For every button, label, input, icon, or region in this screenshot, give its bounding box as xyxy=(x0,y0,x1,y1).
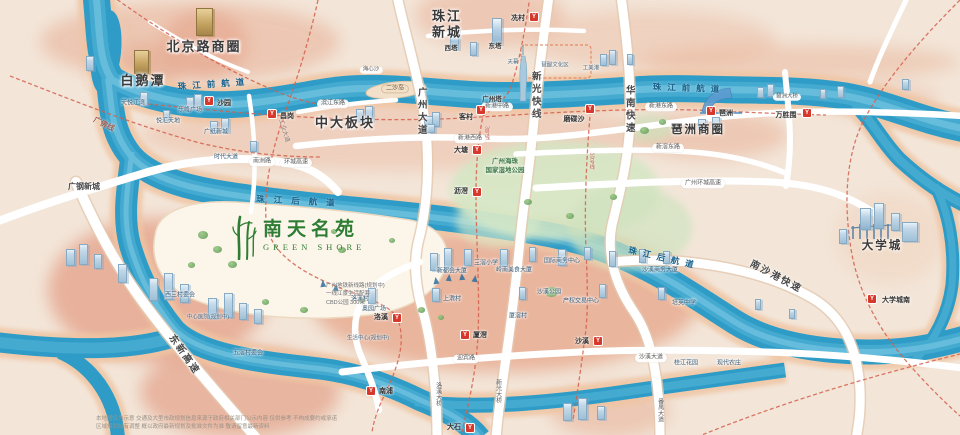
project-name: 南天名苑 xyxy=(263,214,365,241)
project-logo: 南天名苑 GREEN SHORE xyxy=(231,214,365,260)
project-note-3: CBD公园 300米 xyxy=(326,299,385,307)
disclaimer-line-2: 区域规划如有调整 概以政府最新规划及批准文件为准 敬请留意最新资料 xyxy=(96,423,406,431)
project-note-1: 广州地铁新线路(规划中) xyxy=(326,282,385,290)
project-note-2: 一线江景生活配套 xyxy=(326,290,385,298)
project-name-en: GREEN SHORE xyxy=(263,242,365,252)
map-background xyxy=(0,0,960,435)
canton-tower-icon xyxy=(512,46,534,102)
map-disclaimer: 本地图仅为示意 交通及大型市政规划信息来源于政府相关部门公示内容 仅供参考 不构… xyxy=(96,415,406,432)
project-logo-bamboo-icon xyxy=(231,214,259,260)
project-notes: 广州地铁新线路(规划中)一线江景生活配套CBD公园 300米 xyxy=(326,282,385,307)
location-map: 北京路商圈白鹅潭珠江 新城中大板块琶洲商圈大学城广钢新城珠江前航道珠江前航道珠江… xyxy=(0,0,960,435)
convention-center-icon xyxy=(698,86,746,114)
disclaimer-line-1: 本地图仅为示意 交通及大型市政规划信息来源于政府相关部门公示内容 仅供参考 不构… xyxy=(96,415,406,423)
university-gate-icon xyxy=(850,222,896,240)
